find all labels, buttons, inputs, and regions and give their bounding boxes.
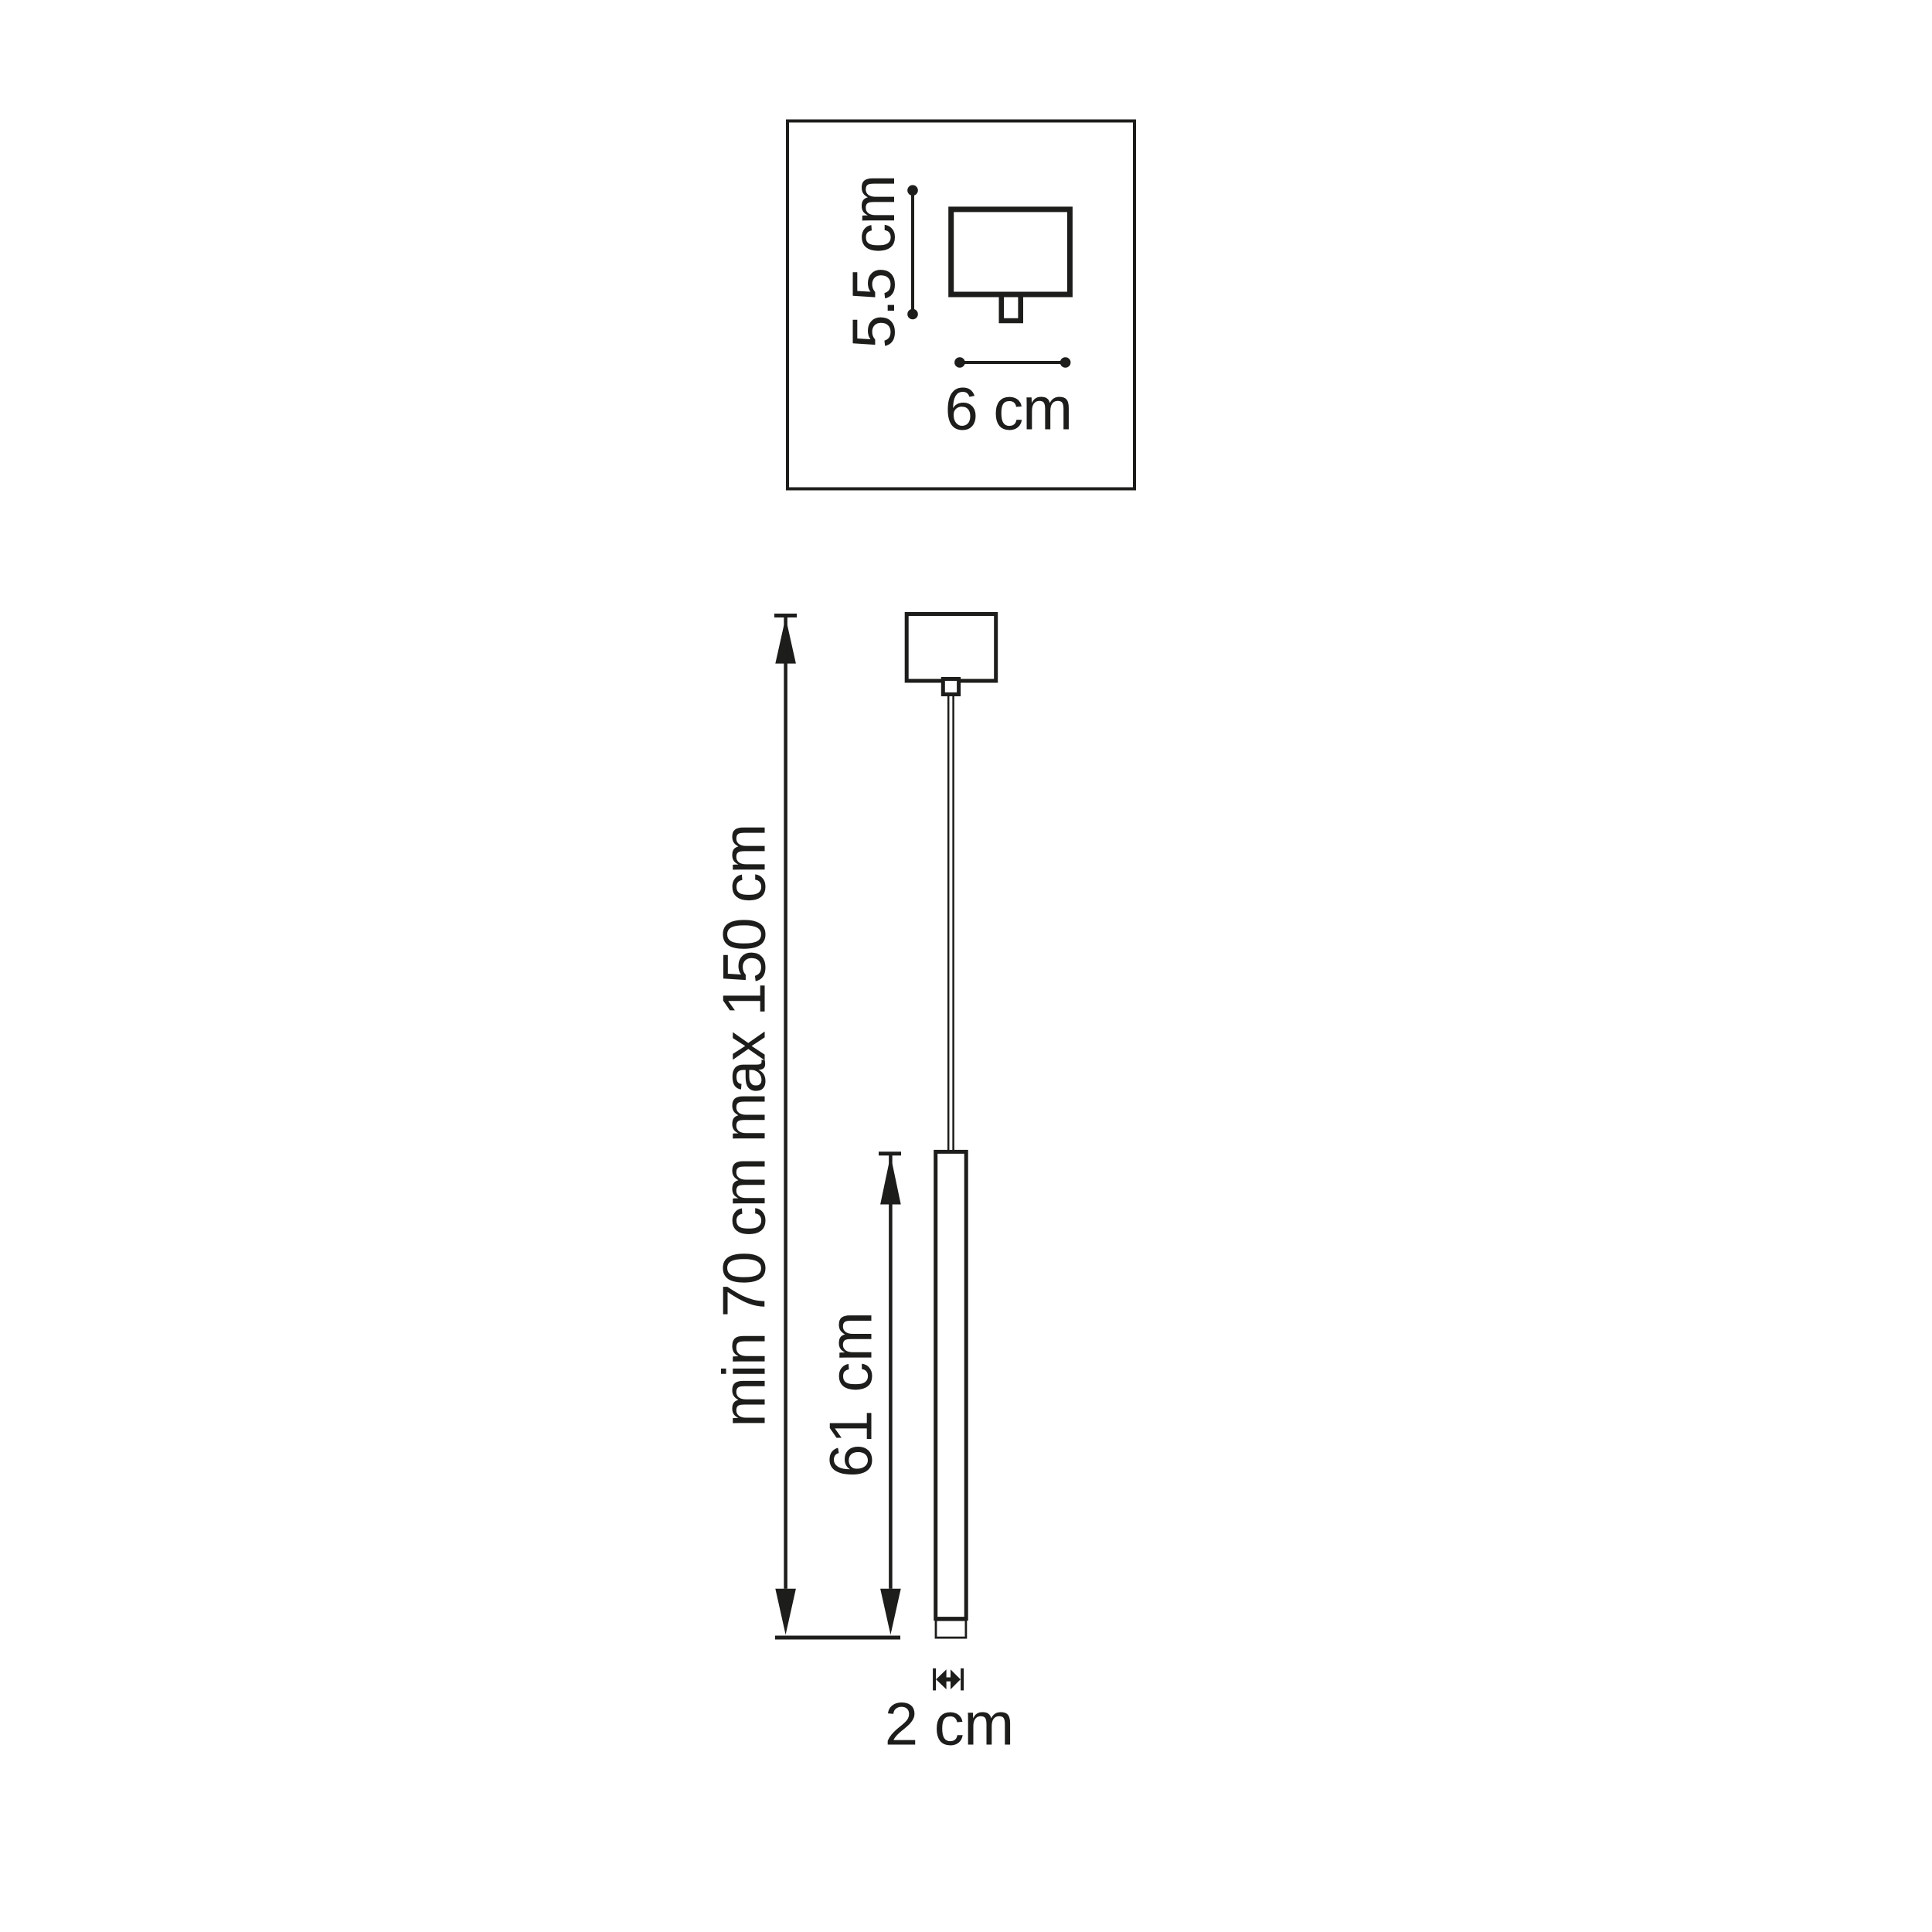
svg-text:2 cm: 2 cm (885, 1690, 1015, 1758)
svg-text:5.5 cm: 5.5 cm (839, 175, 907, 349)
svg-text:6 cm: 6 cm (945, 375, 1073, 443)
svg-text:min 70 cm max 150 cm: min 70 cm max 150 cm (710, 824, 778, 1427)
svg-text:61 cm: 61 cm (817, 1311, 885, 1478)
